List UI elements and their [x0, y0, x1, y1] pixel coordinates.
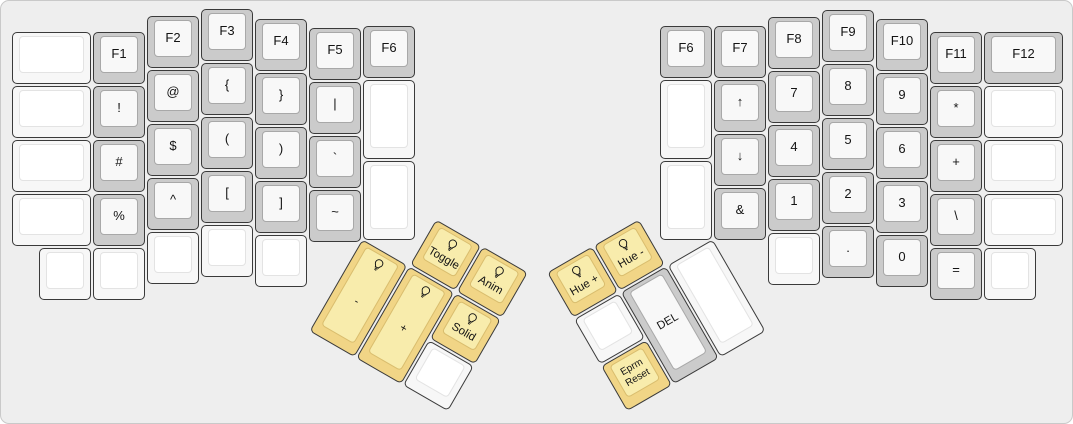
key-blank-r-bottom-2[interactable] — [984, 248, 1036, 300]
key-num-9[interactable]: 9 — [876, 73, 928, 125]
keytop — [19, 36, 84, 73]
key-blank-l-col0-r1[interactable] — [12, 86, 91, 138]
keytop: 2 — [829, 176, 867, 213]
keytop — [100, 252, 138, 289]
key-num-6[interactable]: 6 — [876, 127, 928, 179]
keytop: ( — [208, 121, 246, 158]
keytop — [370, 165, 408, 229]
key-equals[interactable]: = — [930, 248, 982, 300]
key-plus[interactable]: + — [930, 140, 982, 192]
key-label: 8 — [844, 79, 851, 94]
key-label: 5 — [844, 133, 851, 148]
key-num-2[interactable]: 2 — [822, 172, 874, 224]
key-f7[interactable]: F7 — [714, 26, 766, 78]
keytop — [154, 236, 192, 273]
keytop — [19, 198, 84, 235]
keytop: # — [100, 144, 138, 181]
key-num-4[interactable]: 4 — [768, 125, 820, 177]
key-label: 2 — [844, 187, 851, 202]
key-label: F2 — [165, 31, 180, 46]
keytop: ! — [100, 90, 138, 127]
key-label: . — [846, 241, 850, 256]
keytop: } — [262, 77, 300, 114]
key-label: Eprm Reset — [618, 356, 652, 388]
keytop — [991, 144, 1056, 181]
key-blank-l-col0-r0[interactable] — [12, 32, 91, 84]
key-label: - — [336, 270, 376, 335]
key-label: = — [952, 263, 960, 278]
key-label: F9 — [840, 25, 855, 40]
keytop: F12 — [991, 36, 1056, 73]
key-blank-l-bottom-2[interactable] — [93, 248, 145, 300]
key-label: F11 — [945, 47, 966, 62]
keytop: { — [208, 67, 246, 104]
keytop: + — [937, 144, 975, 181]
keytop: 6 — [883, 131, 921, 168]
keytop: & — [721, 192, 759, 229]
key-label: 3 — [898, 196, 905, 211]
keytop: ↑ — [721, 84, 759, 121]
key-label: ~ — [331, 205, 339, 220]
key-label: F3 — [219, 24, 234, 39]
keytop: ↓ — [721, 138, 759, 175]
key-label: ( — [225, 132, 229, 147]
key-label: [ — [225, 186, 229, 201]
key-arrow-up[interactable]: ↑ — [714, 80, 766, 132]
key-label: ^ — [170, 193, 176, 208]
key-label: ] — [279, 196, 283, 211]
key-blank-l-col0-r3[interactable] — [12, 194, 91, 246]
key-num-0[interactable]: 0 — [876, 235, 928, 287]
key-blank-r-col6-r3[interactable] — [984, 194, 1063, 246]
keytop: 3 — [883, 185, 921, 222]
key-label: 6 — [898, 142, 905, 157]
keytop: * — [937, 90, 975, 127]
key-num-8[interactable]: 8 — [822, 64, 874, 116]
key-label: F12 — [1012, 47, 1034, 62]
key-blank-l-inner-top[interactable] — [363, 80, 415, 159]
keytop — [46, 252, 84, 289]
keytop — [262, 239, 300, 276]
key-label: \ — [954, 209, 958, 224]
key-label: DEL — [655, 311, 681, 333]
key-f6-right[interactable]: F6 — [660, 26, 712, 78]
key-asterisk[interactable]: * — [930, 86, 982, 138]
keytop: F3 — [208, 13, 246, 50]
keytop: 7 — [775, 75, 813, 112]
key-hash[interactable]: # — [93, 140, 145, 192]
key-ampersand[interactable]: & — [714, 188, 766, 240]
key-blank-l-bottom-3[interactable] — [147, 232, 199, 284]
keytop: F10 — [883, 23, 921, 60]
key-bracket-close[interactable]: ] — [255, 181, 307, 233]
key-label: @ — [166, 85, 179, 100]
keytop: . — [829, 230, 867, 267]
key-label: F8 — [786, 32, 801, 47]
keytop: F7 — [721, 30, 759, 67]
key-at[interactable]: @ — [147, 70, 199, 122]
key-blank-l-inner-bottom[interactable] — [363, 161, 415, 240]
key-blank-r-col6-r1[interactable] — [984, 86, 1063, 138]
keytop — [991, 252, 1029, 289]
keytop: ] — [262, 185, 300, 222]
keytop: 5 — [829, 122, 867, 159]
keytop — [991, 198, 1056, 235]
keytop: Hue - — [602, 227, 653, 278]
key-paren-open[interactable]: ( — [201, 117, 253, 169]
key-label: F6 — [678, 41, 693, 56]
keytop: [ — [208, 175, 246, 212]
keytop: ) — [262, 131, 300, 168]
keytop: F4 — [262, 23, 300, 60]
keytop — [667, 165, 705, 229]
key-arrow-down[interactable]: ↓ — [714, 134, 766, 186]
key-backtick[interactable]: ` — [309, 136, 361, 188]
key-paren-close[interactable]: ) — [255, 127, 307, 179]
keytop: @ — [154, 74, 192, 111]
keytop: F2 — [154, 20, 192, 57]
key-exclamation[interactable]: ! — [93, 86, 145, 138]
keytop: Anim — [468, 254, 519, 305]
keytop: 8 — [829, 68, 867, 105]
key-blank-l-bottom-4[interactable] — [201, 225, 253, 277]
key-blank-l-bottom-5[interactable] — [255, 235, 307, 287]
key-tilde[interactable]: ~ — [309, 190, 361, 242]
keytop: 4 — [775, 129, 813, 166]
key-label: # — [115, 155, 122, 170]
keytop: F6 — [370, 30, 408, 67]
keytop: 9 — [883, 77, 921, 114]
key-f4[interactable]: F4 — [255, 19, 307, 71]
key-num-5[interactable]: 5 — [822, 118, 874, 170]
key-label: ` — [333, 151, 337, 166]
key-label: + — [382, 296, 424, 363]
key-f8[interactable]: F8 — [768, 17, 820, 69]
key-backslash[interactable]: \ — [930, 194, 982, 246]
keytop: Eprm Reset — [609, 347, 660, 398]
key-label: * — [953, 101, 958, 116]
keytop: $ — [154, 128, 192, 165]
key-blank-r-inner-top[interactable] — [660, 80, 712, 159]
key-blank-r-col6-r2[interactable] — [984, 140, 1063, 192]
key-f6-left[interactable]: F6 — [363, 26, 415, 78]
key-f1[interactable]: F1 — [93, 32, 145, 84]
keytop — [582, 300, 633, 351]
keytop: F6 — [667, 30, 705, 67]
key-label: F5 — [327, 43, 342, 58]
key-caret[interactable]: ^ — [147, 178, 199, 230]
key-label: F4 — [273, 34, 288, 49]
key-f9[interactable]: F9 — [822, 10, 874, 62]
keytop: F9 — [829, 14, 867, 51]
key-label: 1 — [790, 194, 797, 209]
keytop — [208, 229, 246, 266]
keytop — [991, 90, 1056, 127]
key-label: ↑ — [737, 95, 744, 110]
key-label: 0 — [898, 250, 905, 265]
key-num-3[interactable]: 3 — [876, 181, 928, 233]
key-label: F6 — [381, 41, 396, 56]
key-label: { — [225, 78, 229, 93]
key-label: & — [736, 203, 745, 218]
keytop: \ — [937, 198, 975, 235]
key-num-1[interactable]: 1 — [768, 179, 820, 231]
key-pipe[interactable]: | — [309, 82, 361, 134]
key-label: F10 — [891, 34, 913, 49]
keytop: F8 — [775, 21, 813, 58]
keytop: ` — [316, 140, 354, 177]
keytop — [667, 84, 705, 148]
key-label: Toggle — [424, 242, 463, 275]
key-label: ↓ — [737, 149, 744, 164]
key-label: 7 — [790, 86, 797, 101]
key-num-7[interactable]: 7 — [768, 71, 820, 123]
key-label: $ — [169, 139, 176, 154]
key-label: 4 — [790, 140, 797, 155]
keytop: = — [937, 252, 975, 289]
key-label: % — [113, 209, 125, 224]
keytop: | — [316, 86, 354, 123]
keytop: F5 — [316, 32, 354, 69]
key-dollar[interactable]: $ — [147, 124, 199, 176]
key-label: F1 — [111, 47, 126, 62]
key-f5[interactable]: F5 — [309, 28, 361, 80]
key-blank-l-col0-r2[interactable] — [12, 140, 91, 192]
key-brace-open[interactable]: { — [201, 63, 253, 115]
key-percent[interactable]: % — [93, 194, 145, 246]
key-bracket-open[interactable]: [ — [201, 171, 253, 223]
key-f11[interactable]: F11 — [930, 32, 982, 84]
key-f12[interactable]: F12 — [984, 32, 1063, 84]
key-blank-r-inner-bottom[interactable] — [660, 161, 712, 240]
key-label: + — [952, 155, 960, 170]
keytop — [775, 237, 813, 274]
keyboard-layout: F1!#%F2@$^F3{([F4})]F5|`~F6F6F7↑↓&F8741F… — [0, 0, 1073, 424]
keytop: Hue + — [555, 254, 606, 305]
key-f3[interactable]: F3 — [201, 9, 253, 61]
keytop: ^ — [154, 182, 192, 219]
key-f10[interactable]: F10 — [876, 19, 928, 71]
keytop — [370, 84, 408, 148]
key-f2[interactable]: F2 — [147, 16, 199, 68]
keytop: F1 — [100, 36, 138, 73]
keytop: 0 — [883, 239, 921, 276]
key-label: ! — [117, 101, 121, 116]
keytop: F11 — [937, 36, 975, 73]
keytop: Toggle — [422, 227, 473, 278]
keytop — [19, 90, 84, 127]
key-label: ) — [279, 142, 283, 157]
key-label: F7 — [732, 41, 747, 56]
key-label: | — [333, 97, 336, 112]
key-brace-close[interactable]: } — [255, 73, 307, 125]
keytop: % — [100, 198, 138, 235]
key-label: 9 — [898, 88, 905, 103]
key-blank-l-bottom-1[interactable] — [39, 248, 91, 300]
key-blank-r-bottom-1[interactable] — [768, 233, 820, 285]
key-period[interactable]: . — [822, 226, 874, 278]
keytop — [19, 144, 84, 181]
keytop: 1 — [775, 183, 813, 220]
keytop: ~ — [316, 194, 354, 231]
key-label: } — [279, 88, 283, 103]
